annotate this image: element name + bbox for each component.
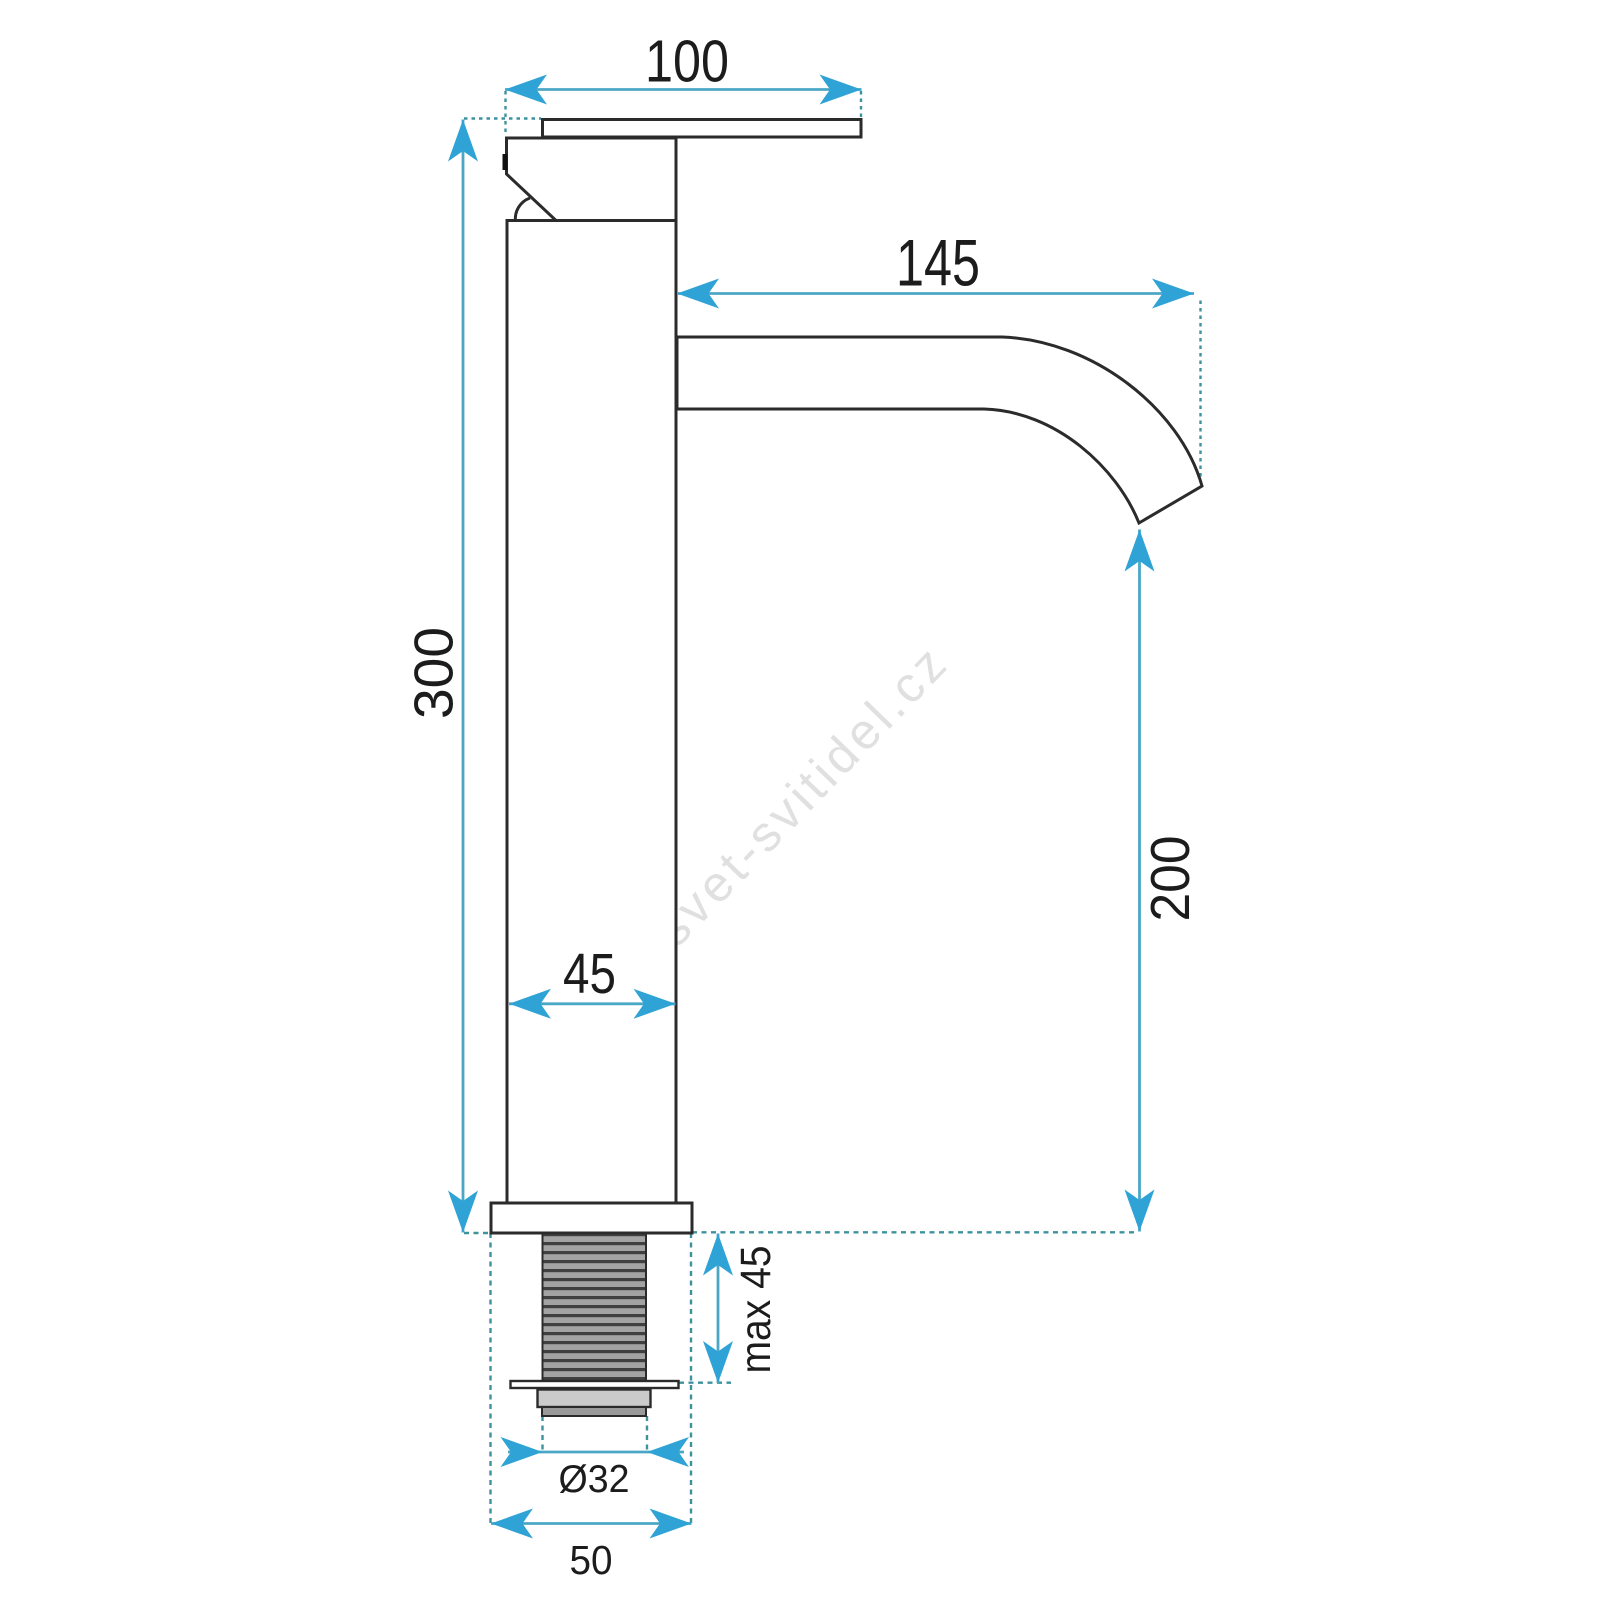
svg-text:45: 45 <box>563 942 616 1006</box>
svg-text:145: 145 <box>896 226 980 300</box>
svg-text:300: 300 <box>402 627 464 719</box>
svg-text:50: 50 <box>570 1537 613 1583</box>
svg-text:100: 100 <box>645 29 729 95</box>
svg-text:200: 200 <box>1139 836 1201 922</box>
svg-text:max 45: max 45 <box>732 1246 780 1374</box>
svg-text:Ø32: Ø32 <box>559 1458 630 1501</box>
